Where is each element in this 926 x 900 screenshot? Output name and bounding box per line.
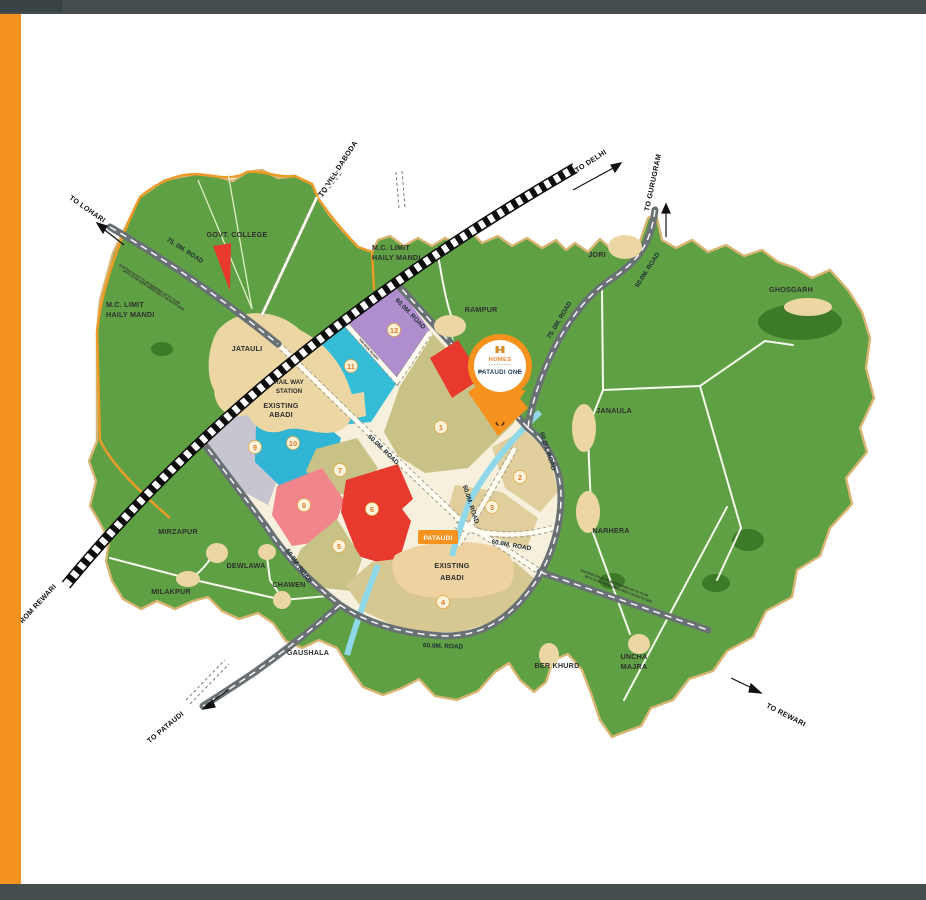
railway-station-label-1: RAIL WAY xyxy=(274,379,304,386)
page: { "frame": { "bar_color": "#444c4e", "ac… xyxy=(0,0,926,900)
jori-label: JORI xyxy=(588,250,606,259)
mc-limit-right-label-2: HAILY MANDI xyxy=(372,253,421,262)
to-rewari-label: TO REWARI xyxy=(765,701,808,729)
pin-project-label: PATAUDI ONE xyxy=(478,369,522,376)
mc-limit-left-label-2: HAILY MANDI xyxy=(106,310,155,319)
sector-marker-9: 9 xyxy=(249,441,262,454)
sector-number: 2 xyxy=(518,473,522,482)
sector-marker-8: 8 xyxy=(298,499,311,512)
sector-number: 7 xyxy=(338,466,342,475)
uncha-majra-label-2: MAJRA xyxy=(621,662,648,671)
road-60m-label-ring-south: 60.0M. ROAD xyxy=(423,642,464,650)
bottom-bar xyxy=(0,884,926,900)
sector-marker-4: 4 xyxy=(437,596,450,609)
sector-number: 3 xyxy=(490,503,494,512)
rampur-label: RAMPUR xyxy=(465,305,498,314)
pataudi-location-map: 1 2 3 4 5 6 7 8 9 10 11 12 PATAUDI GOVT.… xyxy=(0,0,926,900)
railway-station-label-2: STATION xyxy=(276,388,303,395)
pin-brand-label: HOMES xyxy=(489,357,512,363)
sector-marker-2: 2 xyxy=(514,471,527,484)
sector-number: 8 xyxy=(302,501,306,510)
left-accent-stripe xyxy=(0,14,21,884)
sector-number: 11 xyxy=(347,362,355,371)
sector-marker-5: 5 xyxy=(333,540,346,553)
to-vill-daboda-label: TO VILL DABODA xyxy=(316,139,359,198)
jatauli-label: JATAULI xyxy=(232,344,263,353)
govt-college-label: GOVT. COLLEGE xyxy=(207,230,268,239)
sector-number: 12 xyxy=(390,326,398,335)
chawen-label: CHAWEN xyxy=(272,580,305,589)
sector-number: 6 xyxy=(370,505,374,514)
sector-marker-12: 12 xyxy=(388,324,401,337)
sector-marker-1: 1 xyxy=(435,421,448,434)
sector-marker-7: 7 xyxy=(334,464,347,477)
to-gurugram-label: TO GURUGRAM xyxy=(642,153,663,212)
gaushala-label: GAUSHALA xyxy=(287,648,329,657)
sector-number: 1 xyxy=(439,423,443,432)
sector-number: 10 xyxy=(289,439,297,448)
top-bar-dark-segment xyxy=(0,0,62,12)
mc-limit-right-label-1: M.C. LIMIT xyxy=(372,243,410,252)
existing-abadi-s-label-1: EXISTING xyxy=(434,561,469,570)
pataudi-town-label: PATAUDI xyxy=(423,535,452,542)
dewlawa-label: DEWLAWA xyxy=(227,561,266,570)
mc-limit-left-label-1: M.C. LIMIT xyxy=(106,300,144,309)
uncha-majra-label-1: UNCHA xyxy=(621,652,648,661)
milakpur-label: MILAKPUR xyxy=(151,587,191,596)
janaula-label: JANAULA xyxy=(596,406,632,415)
ghosgarh-label: GHOSGARH xyxy=(769,285,813,294)
to-delhi-label: TO DELHI xyxy=(573,147,608,174)
sector-marker-6: 6 xyxy=(366,503,379,516)
existing-abadi-s-label-2: ABADI xyxy=(440,573,464,582)
to-lohari-label: TO LOHARI xyxy=(68,193,108,225)
sector-marker-10: 10 xyxy=(287,437,300,450)
sector-marker-11: 11 xyxy=(345,360,358,373)
pataudi-town-tag: PATAUDI xyxy=(418,530,458,544)
ber-khurd-label: BER KHURD xyxy=(535,661,580,670)
sector-number: 5 xyxy=(337,542,341,551)
to-pataudi-label: TO PATAUDI xyxy=(145,709,185,745)
mirzapur-label: MIRZAPUR xyxy=(158,527,198,536)
top-bar xyxy=(0,0,926,14)
narhera-label: NARHERA xyxy=(592,526,629,535)
sector-marker-3: 3 xyxy=(486,501,499,514)
existing-abadi-nw-label-1: EXISTING xyxy=(263,401,298,410)
existing-abadi-nw-label-2: ABADI xyxy=(269,410,293,419)
sector-number: 9 xyxy=(253,443,257,452)
